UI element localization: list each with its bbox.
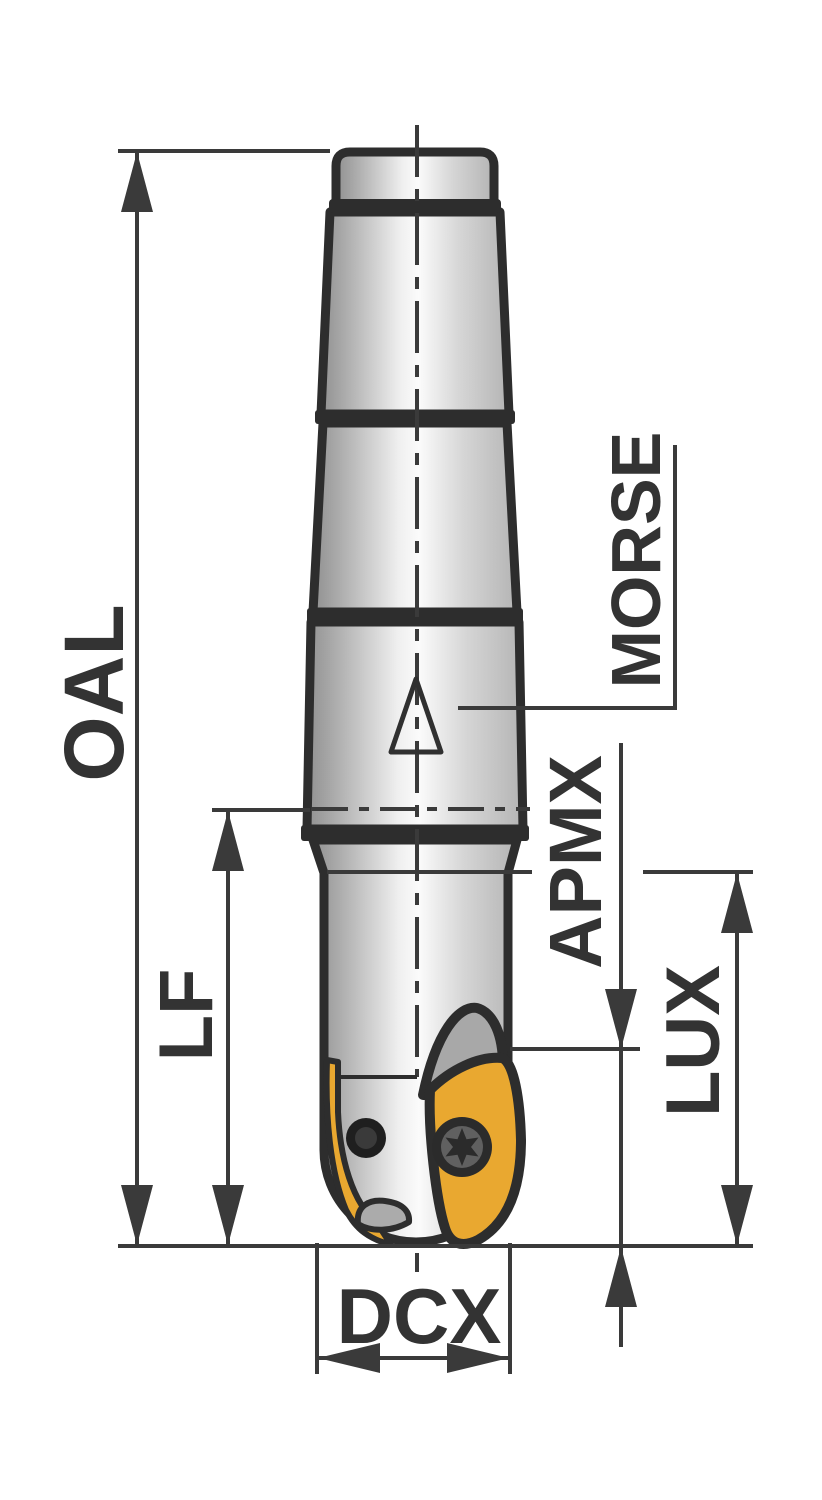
label-apmx: APMX: [539, 755, 613, 969]
label-oal: OAL: [52, 604, 136, 781]
label-lf: LF: [149, 969, 225, 1062]
torx-screw-icon: [432, 1117, 492, 1177]
joint-band: [329, 199, 501, 213]
label-dcx: DCX: [337, 1277, 502, 1355]
label-morse: MORSE: [601, 432, 671, 689]
dot-icon: [346, 1118, 386, 1158]
technical-drawing-page: OAL LF MORSE APMX LUX DCX: [0, 0, 822, 1500]
front-insert-tip: [358, 1201, 409, 1230]
label-lux: LUX: [656, 965, 732, 1117]
